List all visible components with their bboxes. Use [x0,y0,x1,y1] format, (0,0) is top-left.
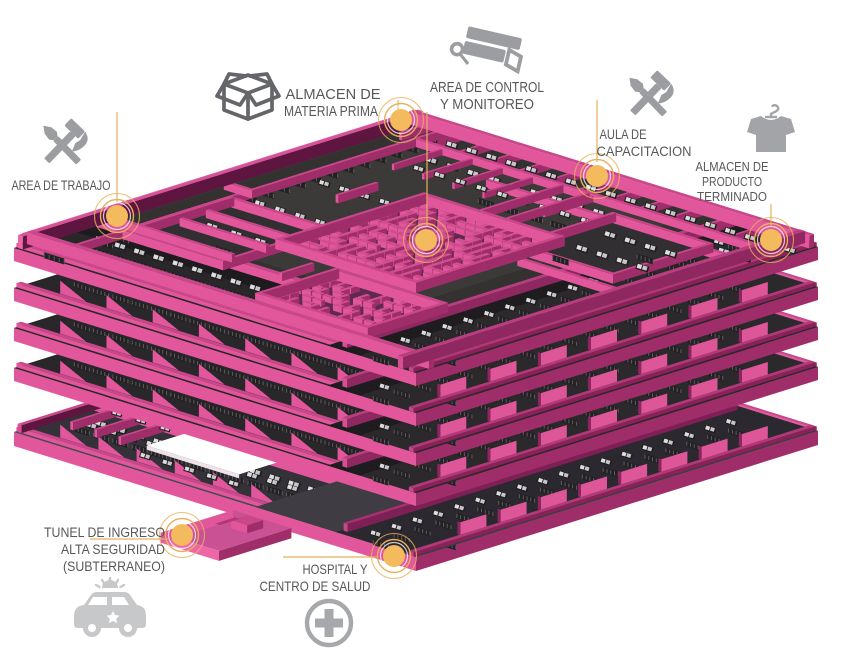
svg-text:TERMINADO: TERMINADO [697,189,767,204]
svg-text:ALMACEN DE: ALMACEN DE [286,86,381,103]
svg-text:Y MONITOREO: Y MONITOREO [440,96,534,113]
svg-text:ALMACEN DE: ALMACEN DE [696,159,769,174]
svg-text:HOSPITAL Y: HOSPITAL Y [303,561,369,577]
svg-text:ALTA SEGURIDAD: ALTA SEGURIDAD [61,541,165,557]
svg-text:AULA DE: AULA DE [600,126,647,142]
svg-text:AREA DE CONTROL: AREA DE CONTROL [430,79,544,96]
svg-text:TUNEL DE INGRESO: TUNEL DE INGRESO [44,524,165,540]
svg-text:PRODUCTO: PRODUCTO [702,174,762,189]
svg-text:CAPACITACION: CAPACITACION [597,143,692,159]
svg-text:CENTRO DE SALUD: CENTRO DE SALUD [260,578,371,594]
svg-text:MATERIA PRIMA: MATERIA PRIMA [284,103,378,120]
svg-text:AREA DE TRABAJO: AREA DE TRABAJO [12,177,111,193]
svg-text:(SUBTERRANEO): (SUBTERRANEO) [63,558,165,574]
